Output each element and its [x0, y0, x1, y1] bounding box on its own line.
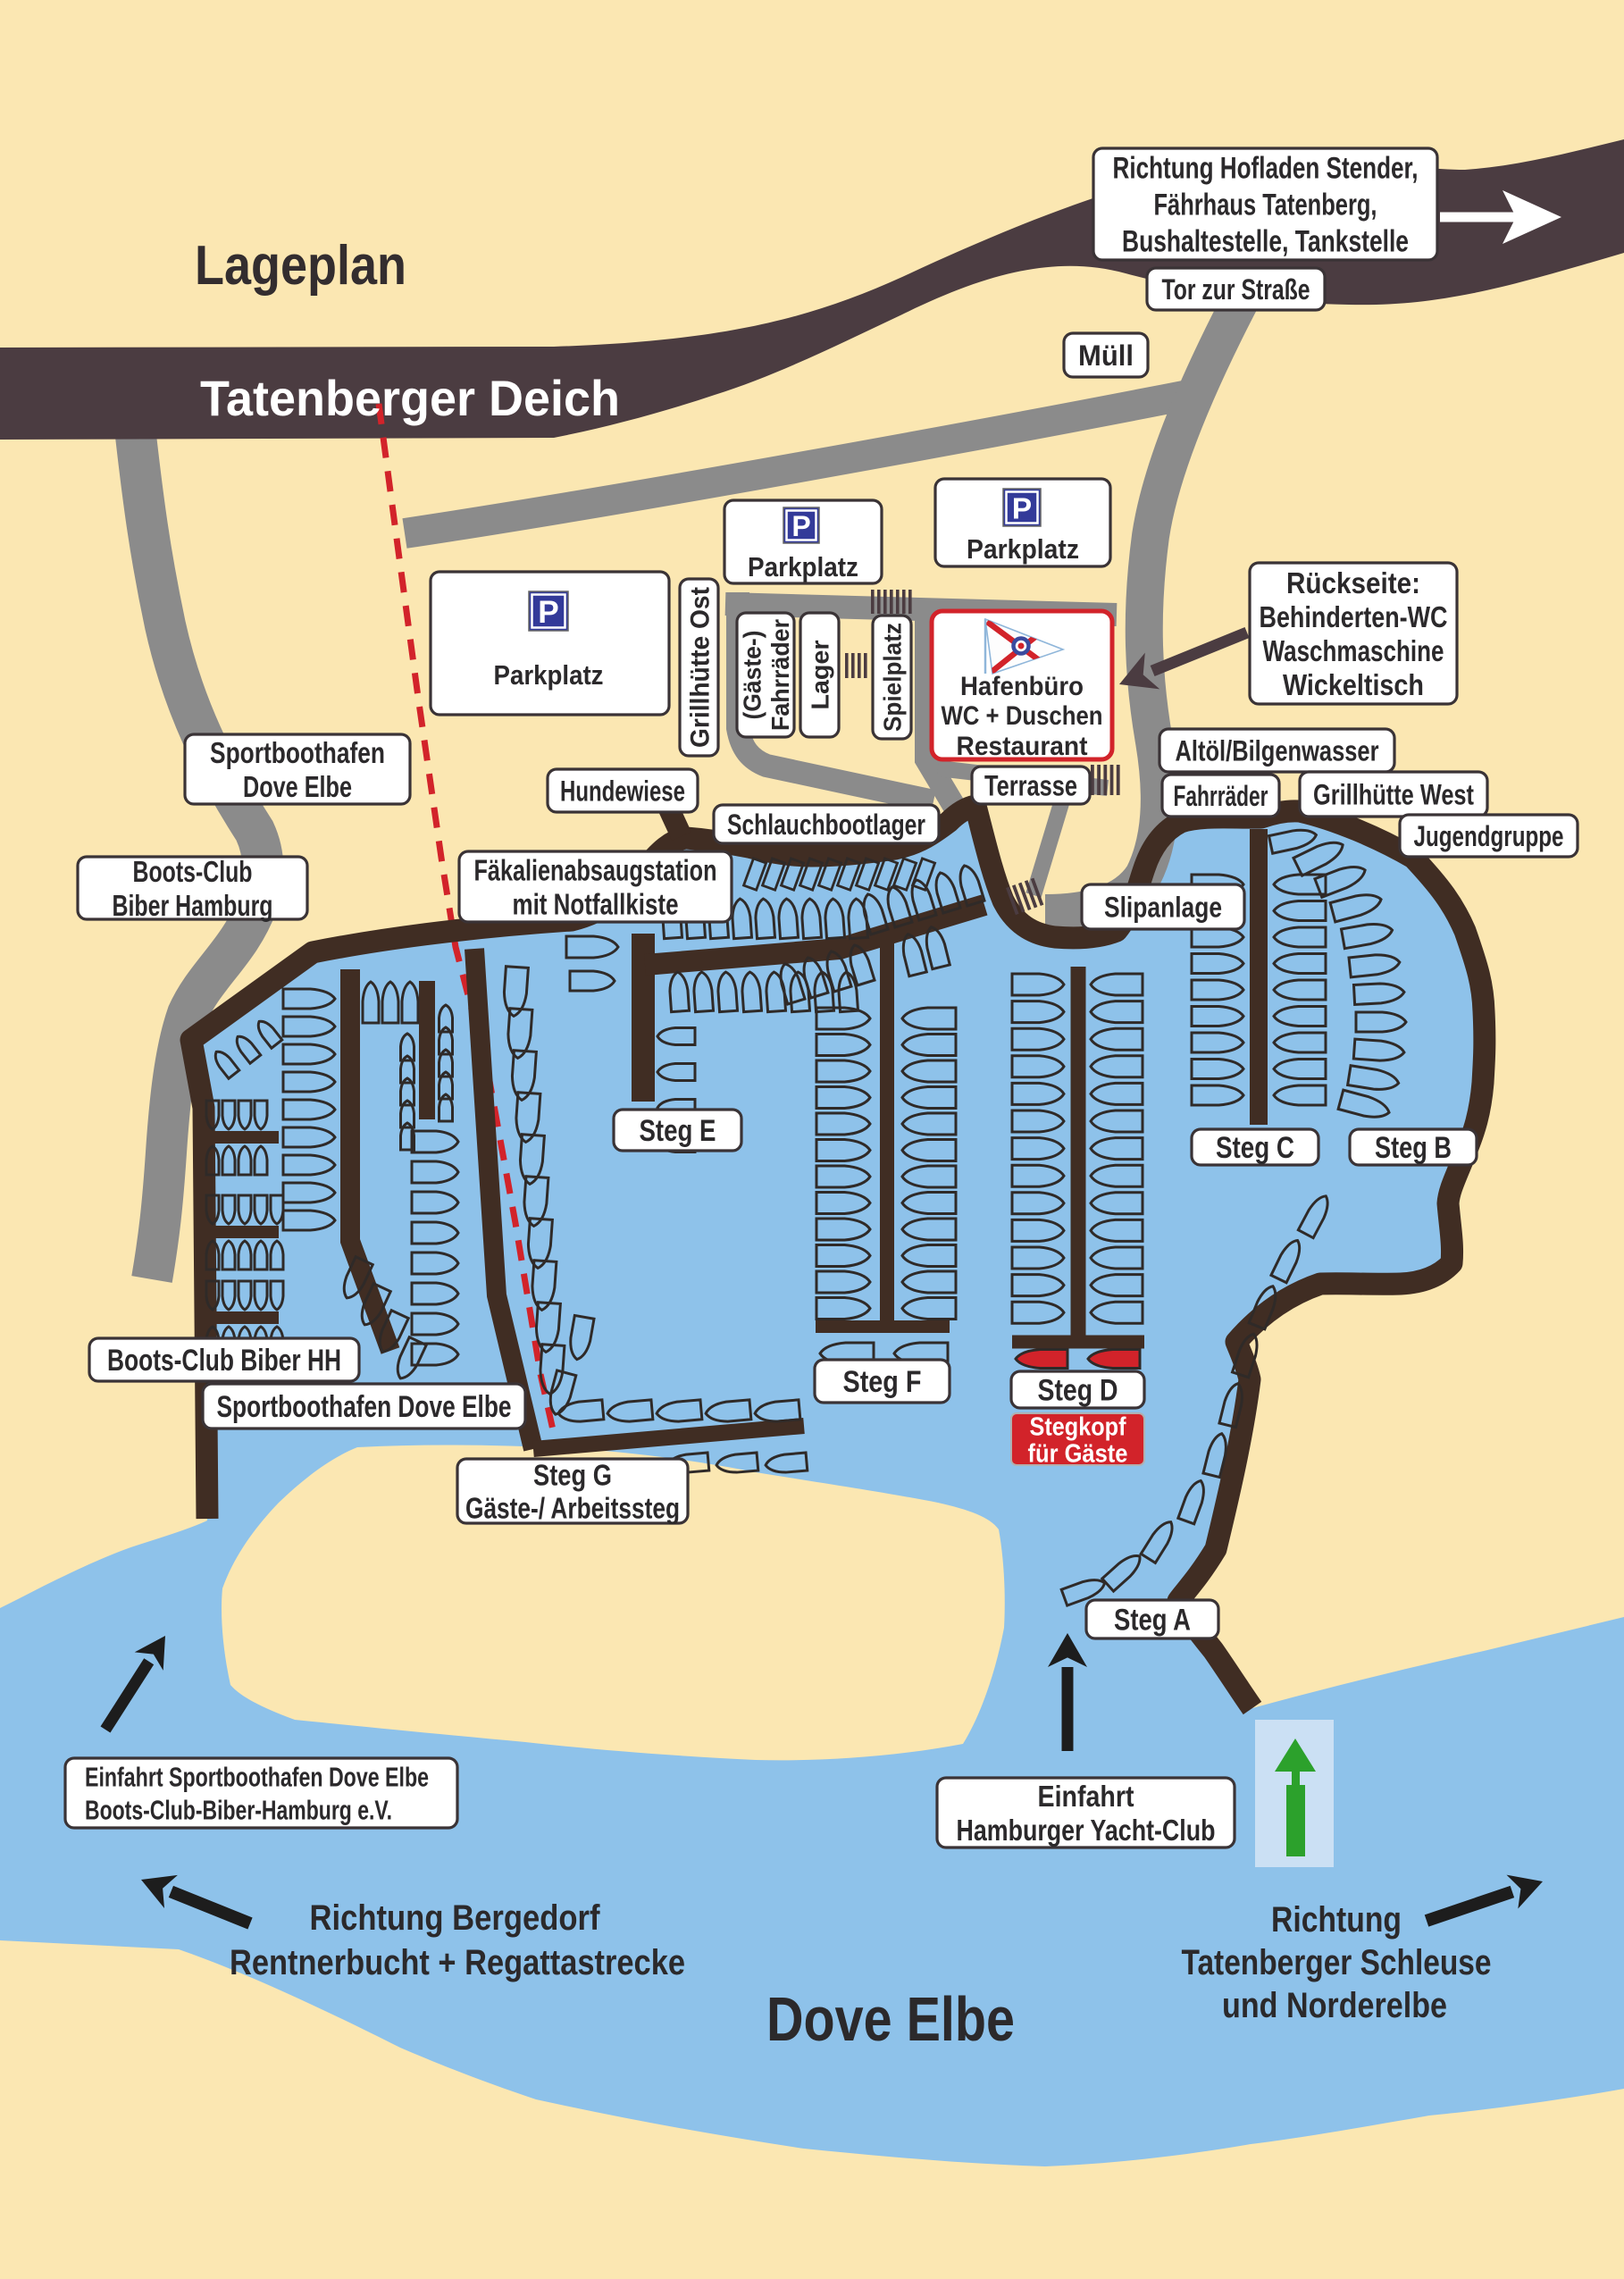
svg-text:Richtung Hofladen Stender,: Richtung Hofladen Stender, — [1113, 152, 1419, 186]
svg-text:Boots-Club-Biber-Hamburg e.V.: Boots-Club-Biber-Hamburg e.V. — [85, 1795, 392, 1826]
svg-text:Parkplatz: Parkplatz — [967, 533, 1079, 565]
svg-text:Grillhütte West: Grillhütte West — [1313, 779, 1474, 811]
svg-text:Einfahrt: Einfahrt — [1038, 1780, 1134, 1813]
svg-text:Tor zur Straße: Tor zur Straße — [1162, 273, 1310, 306]
svg-text:Steg G: Steg G — [533, 1458, 612, 1491]
svg-text:Biber Hamburg: Biber Hamburg — [113, 889, 273, 922]
svg-text:Tatenberger Deich: Tatenberger Deich — [200, 370, 620, 426]
svg-text:Fäkalienabsaugstation: Fäkalienabsaugstation — [474, 853, 717, 886]
svg-text:Stegkopf: Stegkopf — [1030, 1412, 1126, 1441]
svg-text:Gäste-/ Arbeitssteg: Gäste-/ Arbeitssteg — [465, 1491, 680, 1524]
svg-text:Jugendgruppe: Jugendgruppe — [1414, 820, 1564, 852]
svg-text:Steg A: Steg A — [1114, 1604, 1191, 1638]
svg-text:P: P — [791, 510, 810, 542]
svg-text:Grillhütte Ost: Grillhütte Ost — [685, 587, 715, 748]
svg-text:Steg E: Steg E — [640, 1114, 716, 1148]
svg-text:und Norderelbe: und Norderelbe — [1222, 1986, 1447, 2025]
svg-text:Sportboothafen Dove Elbe: Sportboothafen Dove Elbe — [217, 1390, 512, 1424]
svg-text:Boots-Club: Boots-Club — [133, 855, 253, 888]
svg-text:Tatenberger Schleuse: Tatenberger Schleuse — [1182, 1943, 1492, 1982]
svg-text:Steg B: Steg B — [1375, 1131, 1452, 1165]
svg-text:Einfahrt Sportboothafen Dove E: Einfahrt Sportboothafen Dove Elbe — [85, 1762, 429, 1793]
svg-text:Dove Elbe: Dove Elbe — [243, 770, 352, 803]
svg-text:Richtung Bergedorf: Richtung Bergedorf — [310, 1898, 601, 1938]
svg-text:Parkplatz: Parkplatz — [494, 659, 604, 691]
svg-text:mit Notfallkiste: mit Notfallkiste — [513, 887, 679, 920]
svg-text:P: P — [1012, 493, 1032, 526]
svg-text:P: P — [538, 595, 558, 630]
svg-text:Steg C: Steg C — [1216, 1131, 1294, 1165]
svg-text:(Gäste-): (Gäste-) — [738, 631, 766, 720]
svg-text:Fahrräder: Fahrräder — [1174, 780, 1268, 812]
svg-text:Steg F: Steg F — [843, 1365, 922, 1399]
svg-text:Müll: Müll — [1078, 339, 1134, 372]
svg-text:Sportboothafen: Sportboothafen — [210, 736, 385, 769]
svg-text:Parkplatz: Parkplatz — [748, 551, 858, 582]
svg-text:Hamburger Yacht-Club: Hamburger Yacht-Club — [957, 1814, 1216, 1847]
svg-text:Boots-Club Biber HH: Boots-Club Biber HH — [107, 1344, 341, 1378]
svg-text:Waschmaschine: Waschmaschine — [1263, 634, 1444, 667]
svg-text:Slipanlage: Slipanlage — [1104, 892, 1222, 924]
svg-text:Spielplatz: Spielplatz — [879, 623, 907, 732]
svg-text:Hafenbüro: Hafenbüro — [960, 672, 1084, 701]
svg-text:Wickeltisch: Wickeltisch — [1283, 668, 1424, 701]
svg-text:Behinderten-WC: Behinderten-WC — [1260, 600, 1448, 633]
svg-text:für Gäste: für Gäste — [1028, 1439, 1128, 1468]
svg-text:Altöl/Bilgenwasser: Altöl/Bilgenwasser — [1176, 735, 1379, 767]
svg-text:Terrasse: Terrasse — [984, 770, 1077, 802]
svg-text:Lager: Lager — [807, 640, 834, 709]
svg-text:Fährhaus Tatenberg,: Fährhaus Tatenberg, — [1154, 189, 1377, 222]
svg-text:Bushaltestelle, Tankstelle: Bushaltestelle, Tankstelle — [1122, 225, 1409, 259]
svg-text:Dove Elbe: Dove Elbe — [766, 1984, 1015, 2054]
svg-text:Rentnerbucht + Regattastrecke: Rentnerbucht + Regattastrecke — [230, 1943, 685, 1982]
svg-text:Rückseite:: Rückseite: — [1286, 566, 1420, 599]
svg-text:Hundewiese: Hundewiese — [560, 775, 685, 808]
svg-text:Restaurant: Restaurant — [957, 732, 1088, 761]
svg-text:Schlauchbootlager: Schlauchbootlager — [727, 809, 925, 841]
svg-text:Steg D: Steg D — [1038, 1374, 1118, 1408]
svg-text:Lageplan: Lageplan — [195, 235, 406, 297]
svg-text:Richtung: Richtung — [1271, 1900, 1402, 1940]
svg-text:WC + Duschen: WC + Duschen — [942, 701, 1103, 731]
svg-text:Fahrräder: Fahrräder — [766, 619, 794, 731]
